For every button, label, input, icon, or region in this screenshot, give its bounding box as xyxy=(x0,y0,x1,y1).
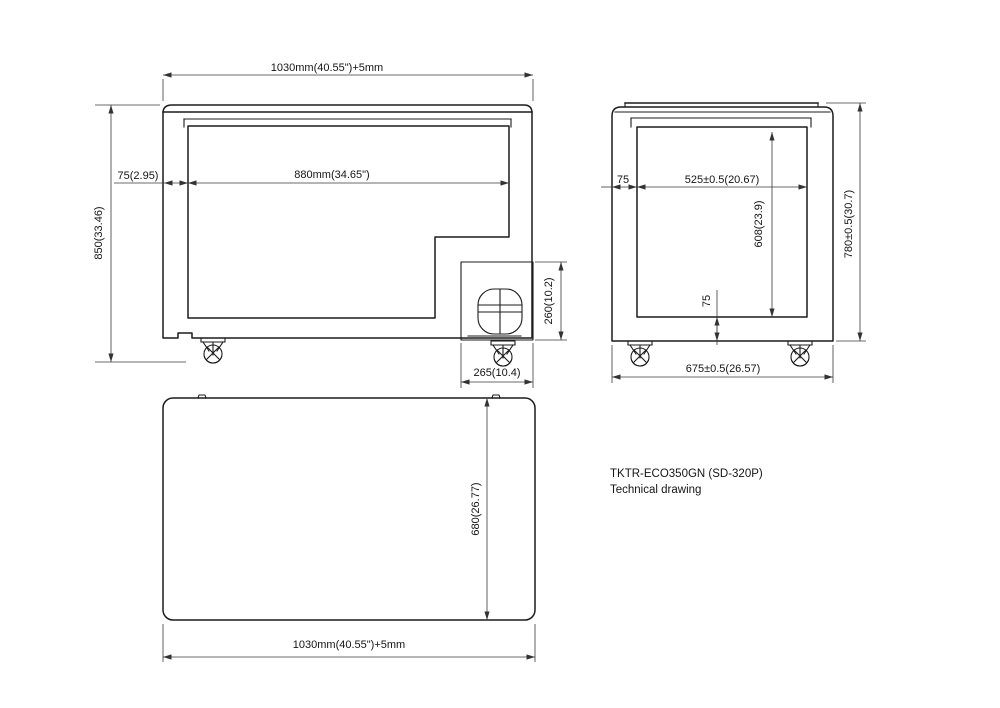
compressor-unit xyxy=(468,289,522,336)
front-dim-overall-height: 850(33.46) xyxy=(93,206,105,259)
side-dim-wall-top: 75 xyxy=(617,174,629,186)
front-view xyxy=(163,105,533,366)
side-caster-right xyxy=(788,341,812,366)
front-body-outline xyxy=(163,105,532,338)
side-dim-outer-depth: 675±0.5(26.57) xyxy=(686,363,761,375)
front-dim-compressor-width: 265(10.4) xyxy=(473,367,520,379)
front-caster-left xyxy=(201,338,225,363)
side-dim-bottom-wall: 75 xyxy=(701,295,713,307)
side-dim-inner-height: 608(23.9) xyxy=(753,200,765,247)
technical-drawing-canvas: 1030mm(40.55")+5mm 880mm(34.65") 75(2.95… xyxy=(0,0,1000,708)
top-view-dimensions: 680(26.77) 1030mm(40.55")+5mm xyxy=(163,398,535,662)
front-dim-overall-width: 1030mm(40.55")+5mm xyxy=(271,62,383,74)
side-body-outline xyxy=(612,107,833,341)
front-view-dimensions: 1030mm(40.55")+5mm 880mm(34.65") 75(2.95… xyxy=(93,62,567,388)
side-view xyxy=(612,103,833,366)
side-dim-inner-depth: 525±0.5(20.67) xyxy=(685,174,760,186)
compressor-compartment xyxy=(461,262,533,340)
side-caster-left xyxy=(628,341,652,366)
side-dim-outer-height: 780±0.5(30.7) xyxy=(843,190,855,258)
top-dim-depth: 680(26.77) xyxy=(470,482,482,535)
side-cavity xyxy=(637,127,807,317)
drawing-caption-text: Technical drawing xyxy=(610,484,701,496)
front-dim-compressor-height: 260(10.2) xyxy=(543,277,555,324)
front-dim-inner-width: 880mm(34.65") xyxy=(294,169,369,181)
top-dim-overall-width: 1030mm(40.55")+5mm xyxy=(293,639,405,651)
title-block: TKTR-ECO350GN (SD-320P) Technical drawin… xyxy=(610,468,763,496)
front-caster-right xyxy=(491,341,515,366)
front-dim-wall-thickness: 75(2.95) xyxy=(118,170,159,182)
model-number-text: TKTR-ECO350GN (SD-320P) xyxy=(610,468,763,480)
compressor-lines xyxy=(479,289,521,334)
technical-drawing-page: 1030mm(40.55")+5mm 880mm(34.65") 75(2.95… xyxy=(0,0,1000,708)
